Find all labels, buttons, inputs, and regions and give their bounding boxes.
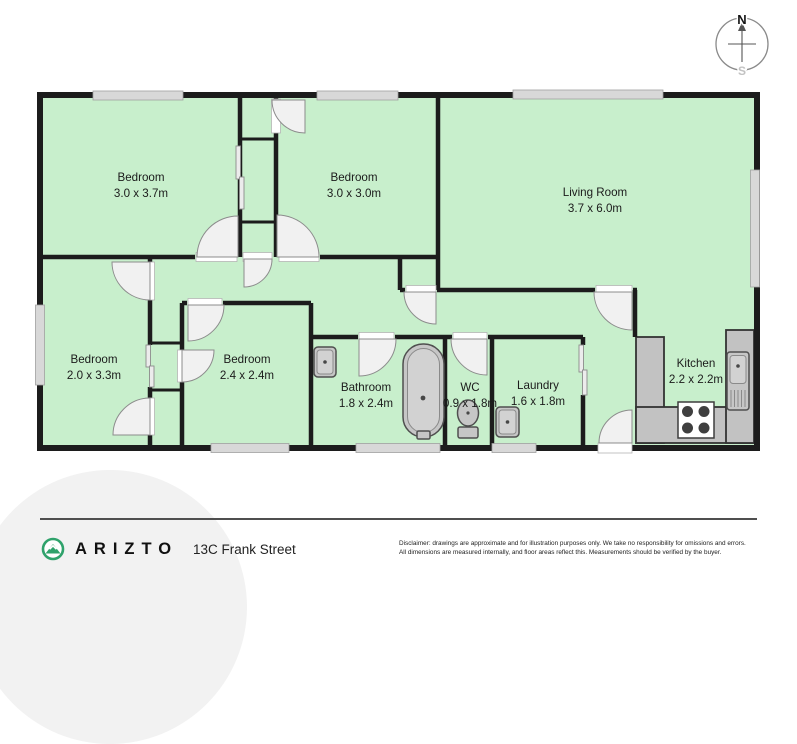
- svg-text:3.7 x 6.0m: 3.7 x 6.0m: [568, 202, 622, 215]
- svg-text:Kitchen: Kitchen: [677, 357, 716, 370]
- svg-text:Bedroom: Bedroom: [223, 353, 270, 366]
- bathtub: [403, 344, 444, 439]
- svg-text:0.9 x 1.8m: 0.9 x 1.8m: [443, 397, 497, 410]
- svg-text:3.0 x 3.7m: 3.0 x 3.7m: [114, 187, 168, 200]
- svg-text:Bedroom: Bedroom: [330, 171, 377, 184]
- floor-plan: Bedroom 3.0 x 3.7m Bedroom 3.0 x 3.0m Li…: [0, 0, 797, 600]
- svg-text:N: N: [737, 12, 746, 27]
- svg-text:Living Room: Living Room: [563, 186, 627, 199]
- svg-text:Laundry: Laundry: [517, 379, 559, 392]
- svg-text:2.4 x 2.4m: 2.4 x 2.4m: [220, 369, 274, 382]
- laundry-sink: [496, 407, 519, 437]
- svg-text:Bedroom: Bedroom: [117, 171, 164, 184]
- bathroom-sink: [314, 347, 336, 377]
- svg-text:Bedroom: Bedroom: [70, 353, 117, 366]
- svg-text:2.0 x 3.3m: 2.0 x 3.3m: [67, 369, 121, 382]
- svg-text:WC: WC: [460, 381, 479, 394]
- svg-text:3.0 x 3.0m: 3.0 x 3.0m: [327, 187, 381, 200]
- stove: [678, 402, 714, 438]
- compass-icon: N S: [716, 12, 768, 78]
- svg-text:1.6 x 1.8m: 1.6 x 1.8m: [511, 395, 565, 408]
- svg-text:S: S: [738, 64, 746, 78]
- svg-text:Bathroom: Bathroom: [341, 381, 391, 394]
- kitchen-sink: [727, 352, 749, 410]
- svg-text:2.2 x 2.2m: 2.2 x 2.2m: [669, 373, 723, 386]
- svg-text:1.8 x 2.4m: 1.8 x 2.4m: [339, 397, 393, 410]
